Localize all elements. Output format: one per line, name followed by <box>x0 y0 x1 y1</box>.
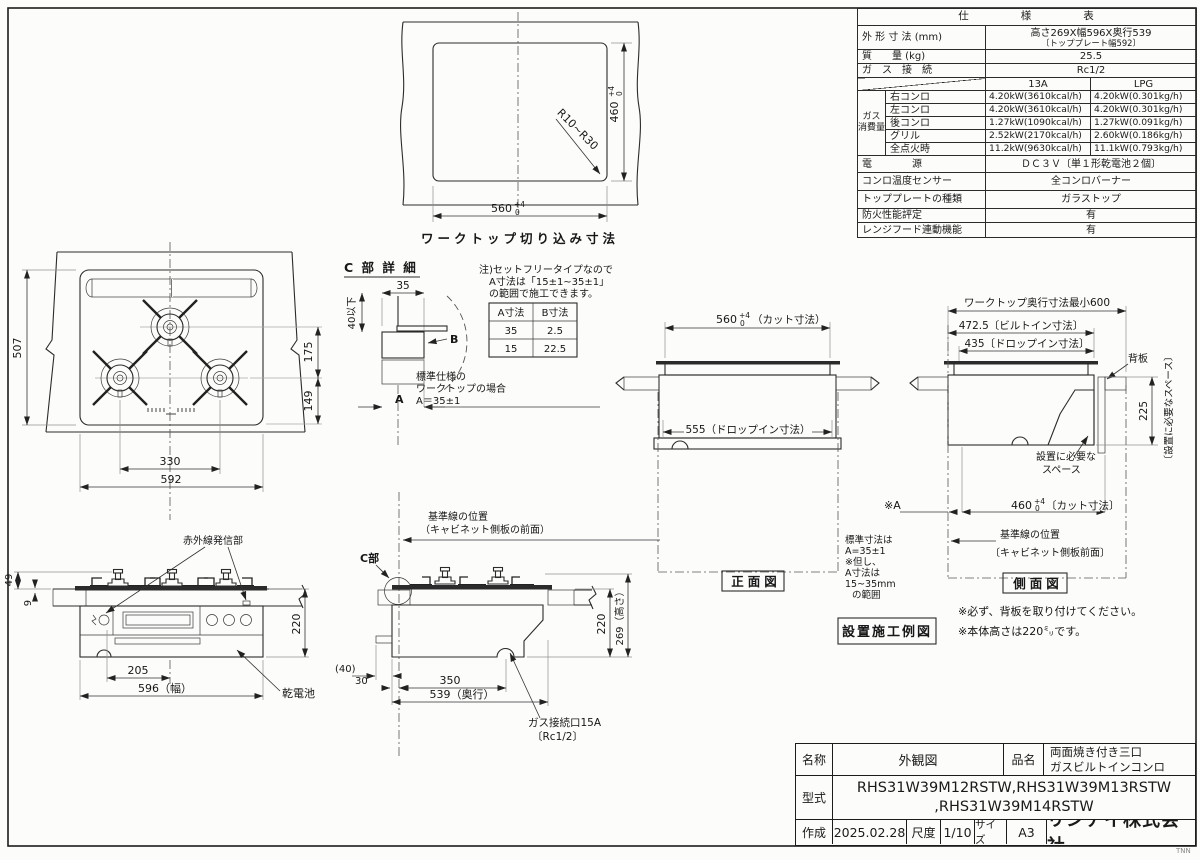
ab-row2-b: 22.5 <box>544 344 566 355</box>
front-cut-tol-zero: 0 <box>740 319 745 328</box>
side-worktop-depth-dim: ワークトップ奥行寸法最小600 <box>964 296 1110 309</box>
gas-consumption-group-label: ガス消費量 <box>858 91 886 156</box>
gas-col-lpg: LPG <box>1091 78 1197 91</box>
spec-row-label: 防火性能評定 <box>858 209 986 223</box>
counter-section-hatch <box>382 332 424 358</box>
dim-40-paren: (40) <box>335 664 356 675</box>
gas-row-label: 全点火時 <box>886 143 986 156</box>
dim-269-height: 269（高さ） <box>613 586 626 645</box>
note-body-height: ※本体高さは220㍉です。 <box>958 624 1086 638</box>
worktop-cutout-view: 460 +4 0 560 +4 0 R10~R30 ワークトップ切り込み寸法 <box>401 12 641 246</box>
battery-label: 乾電池 <box>282 687 315 700</box>
gas-col-13a: 13A <box>986 78 1091 91</box>
svg-text:標準寸法は: 標準寸法は <box>845 534 893 546</box>
gas-row-label: グリル <box>886 130 986 143</box>
spec-row-value: 25.5 <box>986 50 1197 64</box>
back-panel-label: 背板 <box>1128 352 1148 365</box>
spec-row-label: 外 形 寸 法 (mm) <box>858 26 986 50</box>
gas-row-label: 後コンロ <box>886 117 986 130</box>
baseline-label-2: （キャビネット側板の前面） <box>420 523 550 536</box>
spec-row-value: ガラストップ <box>986 191 1197 209</box>
detail-note-2: A寸法は「15±1~35±1」 <box>489 275 609 288</box>
svg-text:※但し、: ※但し、 <box>845 556 881 568</box>
gas-13a-value: 2.52kW(2170kcal/h) <box>986 130 1091 143</box>
side-baseline-label-2: 〔キャビネット側板前面〕 <box>990 546 1110 559</box>
side-a-range-note: 標準寸法は A=35±1 ※但し、 A寸法は 15~35mm の範囲 <box>845 534 896 601</box>
spec-row-value: Rc1/2 <box>986 64 1197 78</box>
model-numbers: RHS31W39M12RSTW,RHS31W39M13RSTW,RHS31W39… <box>832 776 1195 819</box>
spec-row-value: 有 <box>986 223 1197 238</box>
front-cut-suffix: （カット寸法） <box>752 313 826 326</box>
display-window <box>123 612 193 628</box>
title-block-scale-label: 尺度 <box>906 820 940 844</box>
gas-lpg-value: 4.20kW(0.301kg/h) <box>1091 91 1197 104</box>
gas-connection-label-1: ガス接続口15A <box>528 716 602 729</box>
side-cut-tol-zero: 0 <box>1035 504 1040 513</box>
side-space-label-2: スペース <box>1042 465 1081 476</box>
side-cut-dim: 460 <box>1011 499 1032 512</box>
front-elevation-body <box>80 606 263 657</box>
gas-lpg-value: 4.20kW(0.301kg/h) <box>1091 104 1197 117</box>
note-back-panel: ※必ず、背板を取り付けてください。 <box>958 604 1142 618</box>
detail-c-view: C 部 詳 細 35 40以下 B A 注)セットフリータイプなので A寸法は「… <box>344 260 613 445</box>
detail-std-2: ワークトップの場合 <box>416 382 506 395</box>
dim-220-side: 220 <box>595 614 608 635</box>
plan-175-dim: 175 <box>302 342 315 363</box>
title-block-product-label: 品名 <box>1003 744 1043 775</box>
front-view-caption: 正面図 <box>731 574 781 589</box>
ignition-button <box>99 615 109 625</box>
knob-1 <box>207 615 218 626</box>
side-pot-supports <box>410 577 534 585</box>
detail-note-3: の範囲で施工できます。 <box>489 287 598 300</box>
spec-table: 仕 様 表 外 形 寸 法 (mm) 高さ269X幅596X奥行539〔トッププ… <box>857 8 1197 238</box>
spec-row-label: 質 量 (kg) <box>858 50 986 64</box>
cutout-height-dim: 460 <box>608 102 621 123</box>
side-space-label-1: 設置に必要な <box>1036 450 1096 463</box>
title-block-date-label: 作成 <box>796 820 832 844</box>
side-space-vertical-note: 〔設置に必要なスペース〕 <box>1163 352 1175 465</box>
plan-149-dim: 149 <box>302 391 315 412</box>
spec-row-value: 高さ269X幅596X奥行539〔トッププレート幅592〕 <box>986 26 1197 50</box>
side-elevation: 基準線の位置 （キャビネット側板の前面） C部 220 269（高さ） (40) <box>335 492 660 757</box>
detail-40-dim: 40以下 <box>347 297 358 330</box>
gas-row-label: 右コンロ <box>886 91 986 104</box>
gas-lpg-value: 2.60kW(0.186kg/h) <box>1091 130 1197 143</box>
company-name: リンナイ株式会社 <box>1046 820 1195 844</box>
spec-row-value: 有 <box>986 209 1197 223</box>
svg-text:の範囲: の範囲 <box>852 589 881 601</box>
plan-view: 507 175 149 330 592 <box>11 242 322 520</box>
panel-marks <box>148 408 194 414</box>
front-view: 560 +4 0 （カット寸法） 555（ドロップイン寸法） 正面図 <box>616 311 879 591</box>
svg-text:15~35mm: 15~35mm <box>845 579 896 590</box>
gas-type-diagonal-cell <box>858 78 986 91</box>
ab-row1-a: 35 <box>505 326 518 337</box>
gas-lpg-value: 1.27kW(0.091kg/h) <box>1091 117 1197 130</box>
side-body-section <box>944 361 1098 445</box>
install-example-caption: 設置施工例図 <box>842 624 932 640</box>
gas-13a-value: 11.2kW(9630kcal/h) <box>986 143 1091 156</box>
side-dropin-dim: 435〔ドロップイン寸法〕 <box>964 337 1089 350</box>
detail-std-1: 標準仕様の <box>416 370 466 383</box>
product-name: 両面焼き付き三口ガスビルトインコンロ <box>1043 744 1195 775</box>
ab-row2-a: 15 <box>505 344 518 355</box>
dim-220-front: 220 <box>290 614 303 635</box>
baseline-label-1: 基準線の位置 <box>428 510 488 523</box>
gas-13a-value: 1.27kW(1090kcal/h) <box>986 117 1091 130</box>
spec-title: 仕 様 表 <box>858 9 1197 26</box>
title-block-size-label: サイズ <box>974 820 1006 844</box>
gas-13a-value: 4.20kW(3610kcal/h) <box>986 91 1091 104</box>
detail-c-title: C 部 詳 細 <box>344 260 418 275</box>
side-elevation-body <box>392 605 543 657</box>
cutout-width-dim: 560 <box>491 202 512 215</box>
spec-row-label: ガ ス 接 続 <box>858 64 986 78</box>
ab-table-header-b: B寸法 <box>542 306 569 319</box>
spec-row-label: トッププレートの種類 <box>858 191 986 209</box>
side-cut-suffix: 〔カット寸法〕 <box>1046 499 1120 512</box>
drawing-scale: 1/10 <box>940 820 974 844</box>
corner-watermark: TNN <box>1176 847 1191 855</box>
spec-row-value: 全コンロバーナー <box>986 173 1197 191</box>
side-225-dim: 225 <box>1138 401 1150 421</box>
drawing-name: 外観図 <box>832 744 1003 775</box>
knob-2 <box>224 615 235 626</box>
spec-row-value: ＤＣ３Ｖ〔単１形乾電池２個〕 <box>986 156 1197 173</box>
dim-350: 350 <box>440 674 461 687</box>
svg-text:A=35±1: A=35±1 <box>845 546 886 557</box>
spec-row-label: レンジフード連動機能 <box>858 223 986 238</box>
front-cut-dim: 560 <box>716 313 737 326</box>
grill-door-slot <box>115 638 200 644</box>
side-baseline-label-1: 基準線の位置 <box>1000 528 1060 541</box>
dim-596-width: 596（幅） <box>138 682 192 695</box>
detail-35-dim: 35 <box>396 280 409 292</box>
title-block-name-label: 名称 <box>796 744 832 775</box>
gas-connection-label-2: 〔Rc1/2〕 <box>532 730 583 743</box>
svg-text:A寸法は: A寸法は <box>845 567 880 579</box>
detail-a-label: A <box>395 393 404 406</box>
cutout-height-tol-zero: 0 <box>615 91 624 96</box>
cutout-width-tol-zero: 0 <box>515 208 520 217</box>
detail-b-label: B <box>450 333 458 346</box>
detail-c-callout: C部 <box>360 551 379 565</box>
detail-std-3: A＝35±1 <box>416 396 460 407</box>
paper-size: A3 <box>1006 820 1046 844</box>
back-panel-section <box>1098 377 1105 453</box>
side-view-caption: 側面図 <box>1012 576 1063 591</box>
gas-13a-value: 4.20kW(3610kcal/h) <box>986 104 1091 117</box>
side-view: ワークトップ奥行寸法最小600 472.5〔ビルトイン寸法〕 435〔ドロップイ… <box>845 296 1175 601</box>
knob-3 <box>241 615 252 626</box>
dim-539-depth: 539（奥行） <box>430 687 495 701</box>
ir-transmitter-label: 赤外線発信部 <box>183 534 243 547</box>
creation-date: 2025.02.28 <box>832 820 906 844</box>
ab-table-header-a: A寸法 <box>498 306 525 319</box>
detail-note-1: 注)セットフリータイプなので <box>479 263 613 276</box>
front-dropin-dim: 555（ドロップイン寸法） <box>685 423 810 436</box>
front-elevation: 赤外線発信部 49 9 220 205 596（幅） 乾電池 <box>4 534 315 700</box>
dim-205: 205 <box>128 664 149 677</box>
gas-row-label: 左コンロ <box>886 104 986 117</box>
cutout-caption: ワークトップ切り込み寸法 <box>421 231 619 246</box>
title-block: 名称 外観図 品名 両面焼き付き三口ガスビルトインコンロ 型式 RHS31W39… <box>795 743 1196 846</box>
side-builtin-dim: 472.5〔ビルトイン寸法〕 <box>959 319 1084 332</box>
title-block-model-label: 型式 <box>796 776 832 819</box>
plan-depth-dim: 507 <box>11 338 24 359</box>
dim-9: 9 <box>23 600 34 606</box>
drawing-sheet: 460 +4 0 560 +4 0 R10~R30 ワークトップ切り込み寸法 <box>0 0 1200 860</box>
gas-lpg-value: 11.1kW(0.793kg/h) <box>1091 143 1197 156</box>
dim-49: 49 <box>4 574 15 587</box>
plan-burner-span-dim: 330 <box>160 455 181 468</box>
plan-width-dim: 592 <box>161 473 182 486</box>
detail-ab-table: A寸法 B寸法 35 2.5 15 22.5 <box>489 303 577 357</box>
ab-row1-b: 2.5 <box>547 326 563 337</box>
front-counter-sections <box>616 377 879 390</box>
side-ref-a-label: ※A <box>884 499 901 512</box>
spec-row-label: コンロ温度センサー <box>858 173 986 191</box>
dim-30: 30 <box>355 676 368 687</box>
spec-row-label: 電 源 <box>858 156 986 173</box>
